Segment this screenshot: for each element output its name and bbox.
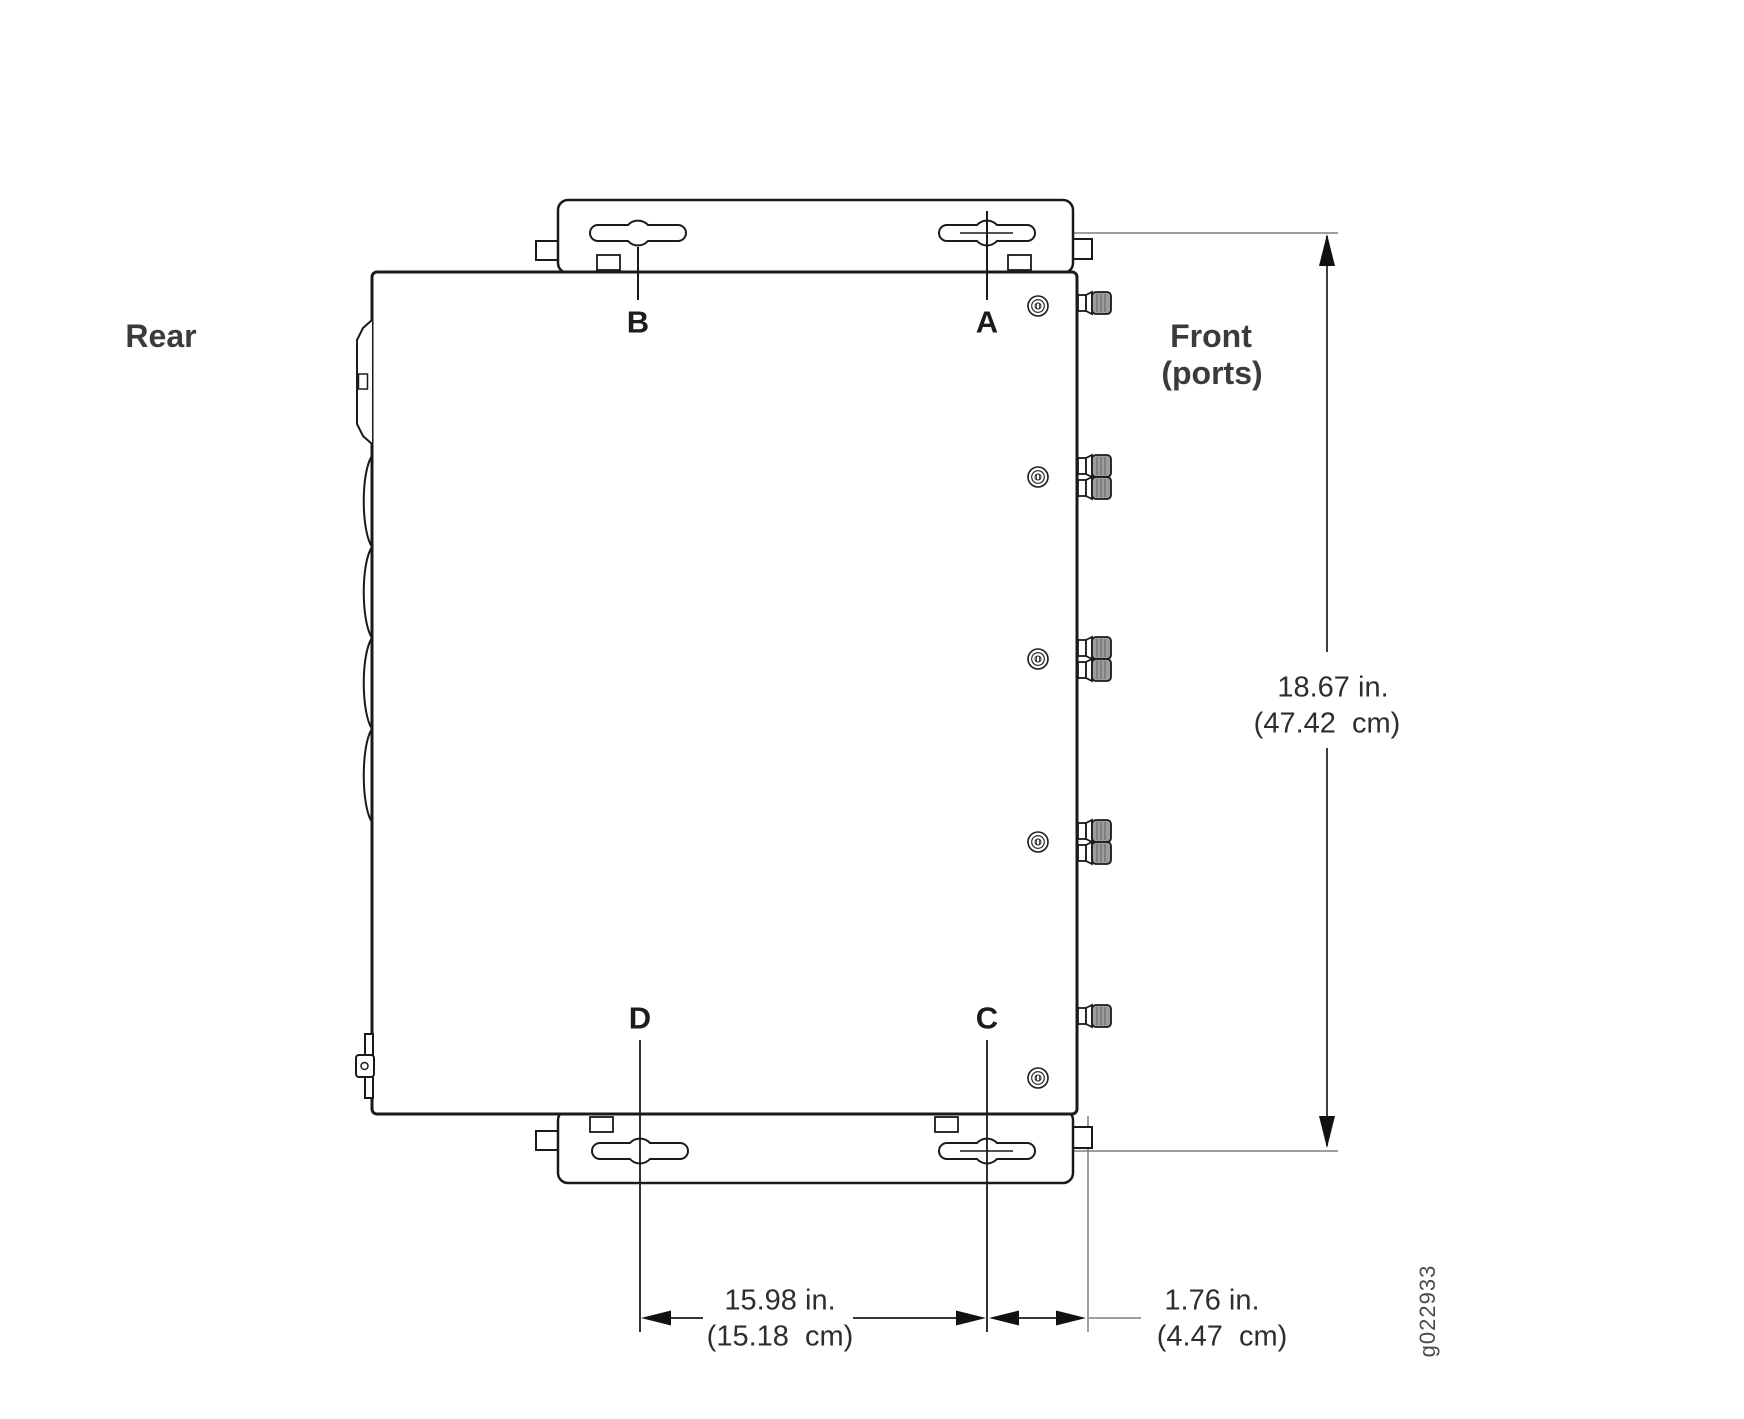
front-side-label: Front (1170, 320, 1252, 352)
arrow-down (1319, 1116, 1335, 1148)
rear-side-label: Rear (125, 320, 196, 352)
arrow-right (1056, 1311, 1086, 1326)
keyhole-spacing-cm: (15.18 cm) (707, 1323, 854, 1352)
arrow-up (1319, 234, 1335, 266)
rear-panel-slot (359, 374, 368, 389)
front-side-sublabel: (ports) (1161, 357, 1262, 389)
height-dimension-inches: 18.67 in. (1277, 674, 1388, 703)
figure-id: g022933 (1417, 1265, 1439, 1358)
mount-hole-label-c: C (976, 1003, 998, 1034)
arrow-right (956, 1311, 986, 1326)
front-offset-inches: 1.76 in. (1164, 1287, 1259, 1316)
front-offset-dimension-line (989, 1311, 1086, 1326)
arrow-left (641, 1311, 671, 1326)
front-port-connectors (1078, 292, 1111, 1027)
mount-hole-label-a: A (976, 307, 998, 338)
front-offset-cm: (4.47 cm) (1157, 1323, 1288, 1352)
chassis-outline (372, 272, 1077, 1114)
mount-hole-label-b: B (627, 307, 649, 338)
chassis-line-art (0, 0, 1744, 1419)
height-dimension-cm: (47.42 cm) (1254, 710, 1401, 739)
keyhole-spacing-inches: 15.98 in. (724, 1287, 835, 1316)
mount-hole-label-d: D (629, 1003, 651, 1034)
rear-latch-knob (356, 1055, 374, 1077)
mounting-dimension-diagram: Rear Front (ports) B A D C 18.67 in. (47… (0, 0, 1744, 1419)
keyhole-slot-b (590, 221, 686, 246)
arrow-left (989, 1311, 1019, 1326)
